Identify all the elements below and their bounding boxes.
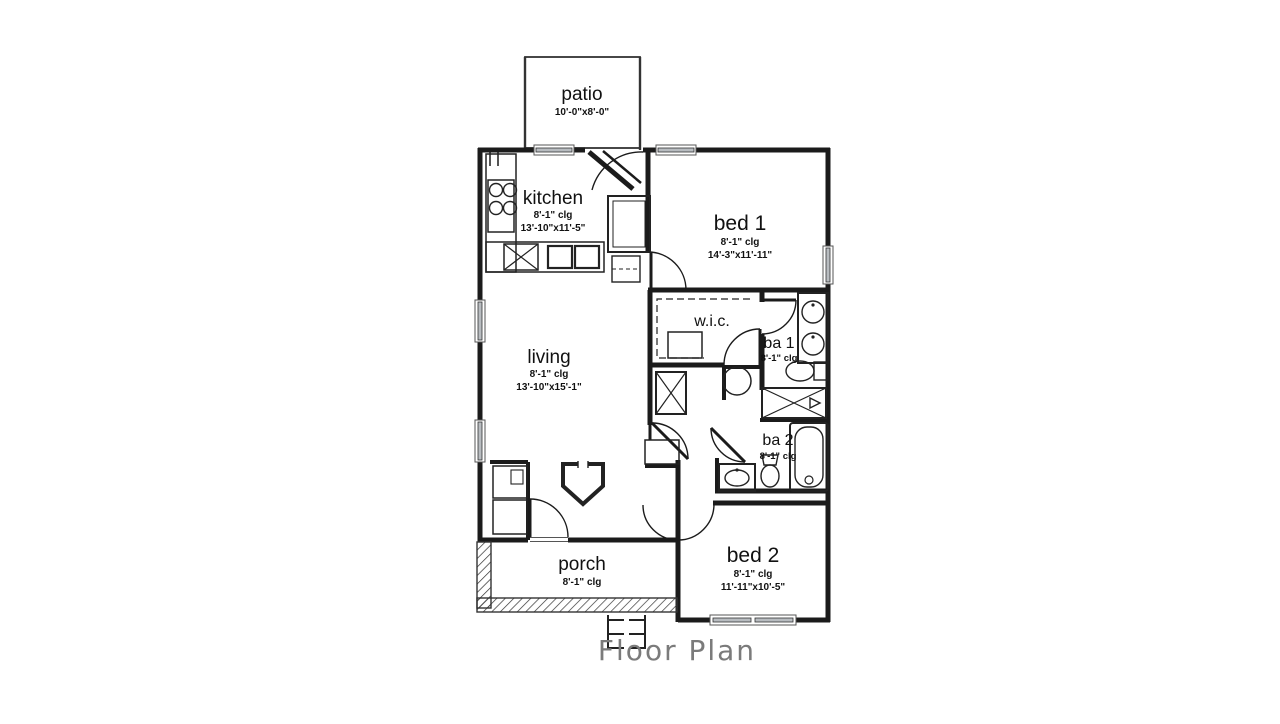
bed1-name: bed 1	[714, 212, 767, 235]
room-label-ba2: ba 2 8'-1" clg	[760, 432, 797, 462]
window-icon	[475, 420, 485, 462]
living-dims: 13'-10"x15'-1"	[516, 382, 582, 393]
water-heater-icon	[723, 367, 751, 395]
kitchen-dims: 13'-10"x11'-5"	[521, 223, 586, 234]
sliding-door-icon	[589, 151, 643, 190]
window-icon	[475, 300, 485, 342]
living-clg: 8'-1" clg	[530, 369, 569, 380]
floor-plan-page: patio 10'-0"x8'-0" kitchen 8'-1" clg 13'…	[0, 0, 1280, 724]
ba2-sink-icon	[719, 464, 755, 491]
porch-sill	[477, 598, 677, 612]
door-arc-entry	[643, 505, 678, 540]
page-title: Floor Plan	[598, 634, 756, 667]
floor-plan-drawing: patio 10'-0"x8'-0" kitchen 8'-1" clg 13'…	[0, 0, 1280, 724]
washer-icon	[656, 372, 686, 414]
range-icon	[488, 180, 517, 232]
kitchen-name: kitchen	[523, 188, 583, 209]
wic-name: w.i.c.	[693, 313, 730, 330]
bed2-dims: 11'-11"x10'-5"	[721, 582, 786, 593]
bed2-clg: 8'-1" clg	[734, 569, 773, 580]
patio-name: patio	[561, 84, 602, 105]
door-arc-bed2	[678, 504, 714, 540]
room-label-patio: patio 10'-0"x8'-0"	[555, 84, 610, 118]
room-label-porch: porch 8'-1" clg	[558, 554, 606, 588]
ba2-clg: 8'-1" clg	[760, 451, 797, 462]
ba1-name: ba 1	[763, 335, 794, 352]
room-label-bed2: bed 2 8'-1" clg 11'-11"x10'-5"	[721, 544, 786, 593]
dishwasher-icon	[504, 244, 538, 270]
corner-closet-icon	[563, 461, 603, 504]
window-icon	[823, 246, 833, 284]
porch-clg: 8'-1" clg	[563, 577, 602, 588]
shower-icon	[762, 388, 826, 418]
door-arc-ba1	[762, 300, 796, 334]
bed2-name: bed 2	[727, 544, 780, 567]
bed1-dims: 14'-3"x11'-11"	[708, 250, 773, 261]
window-icon	[656, 145, 696, 155]
kitchen-clg: 8'-1" clg	[534, 210, 573, 221]
room-label-bed1: bed 1 8'-1" clg 14'-3"x11'-11"	[708, 212, 773, 261]
ba2-name: ba 2	[762, 432, 793, 449]
living-name: living	[527, 347, 570, 368]
kitchen-sink-icon	[548, 246, 599, 268]
porch-name: porch	[558, 554, 606, 575]
room-label-kitchen: kitchen 8'-1" clg 13'-10"x11'-5"	[521, 188, 586, 234]
ba1-clg: 8'-1" clg	[761, 353, 798, 364]
window-icon	[534, 145, 574, 155]
room-label-living: living 8'-1" clg 13'-10"x15'-1"	[516, 347, 582, 393]
door-arc-bed1	[648, 252, 686, 290]
door-arc-front	[530, 499, 568, 542]
door-arc-wic	[724, 329, 760, 365]
pantry-icon	[608, 196, 650, 282]
ba1-vanity-icon	[798, 293, 828, 363]
bed1-clg: 8'-1" clg	[721, 237, 760, 248]
window-icon	[710, 615, 796, 625]
room-label-wic: w.i.c.	[693, 313, 730, 330]
door-arc-hall	[652, 423, 745, 462]
laundry-closet-icon	[493, 466, 527, 534]
patio-dims: 10'-0"x8'-0"	[555, 107, 610, 118]
room-label-ba1: ba 1 8'-1" clg	[761, 335, 798, 364]
